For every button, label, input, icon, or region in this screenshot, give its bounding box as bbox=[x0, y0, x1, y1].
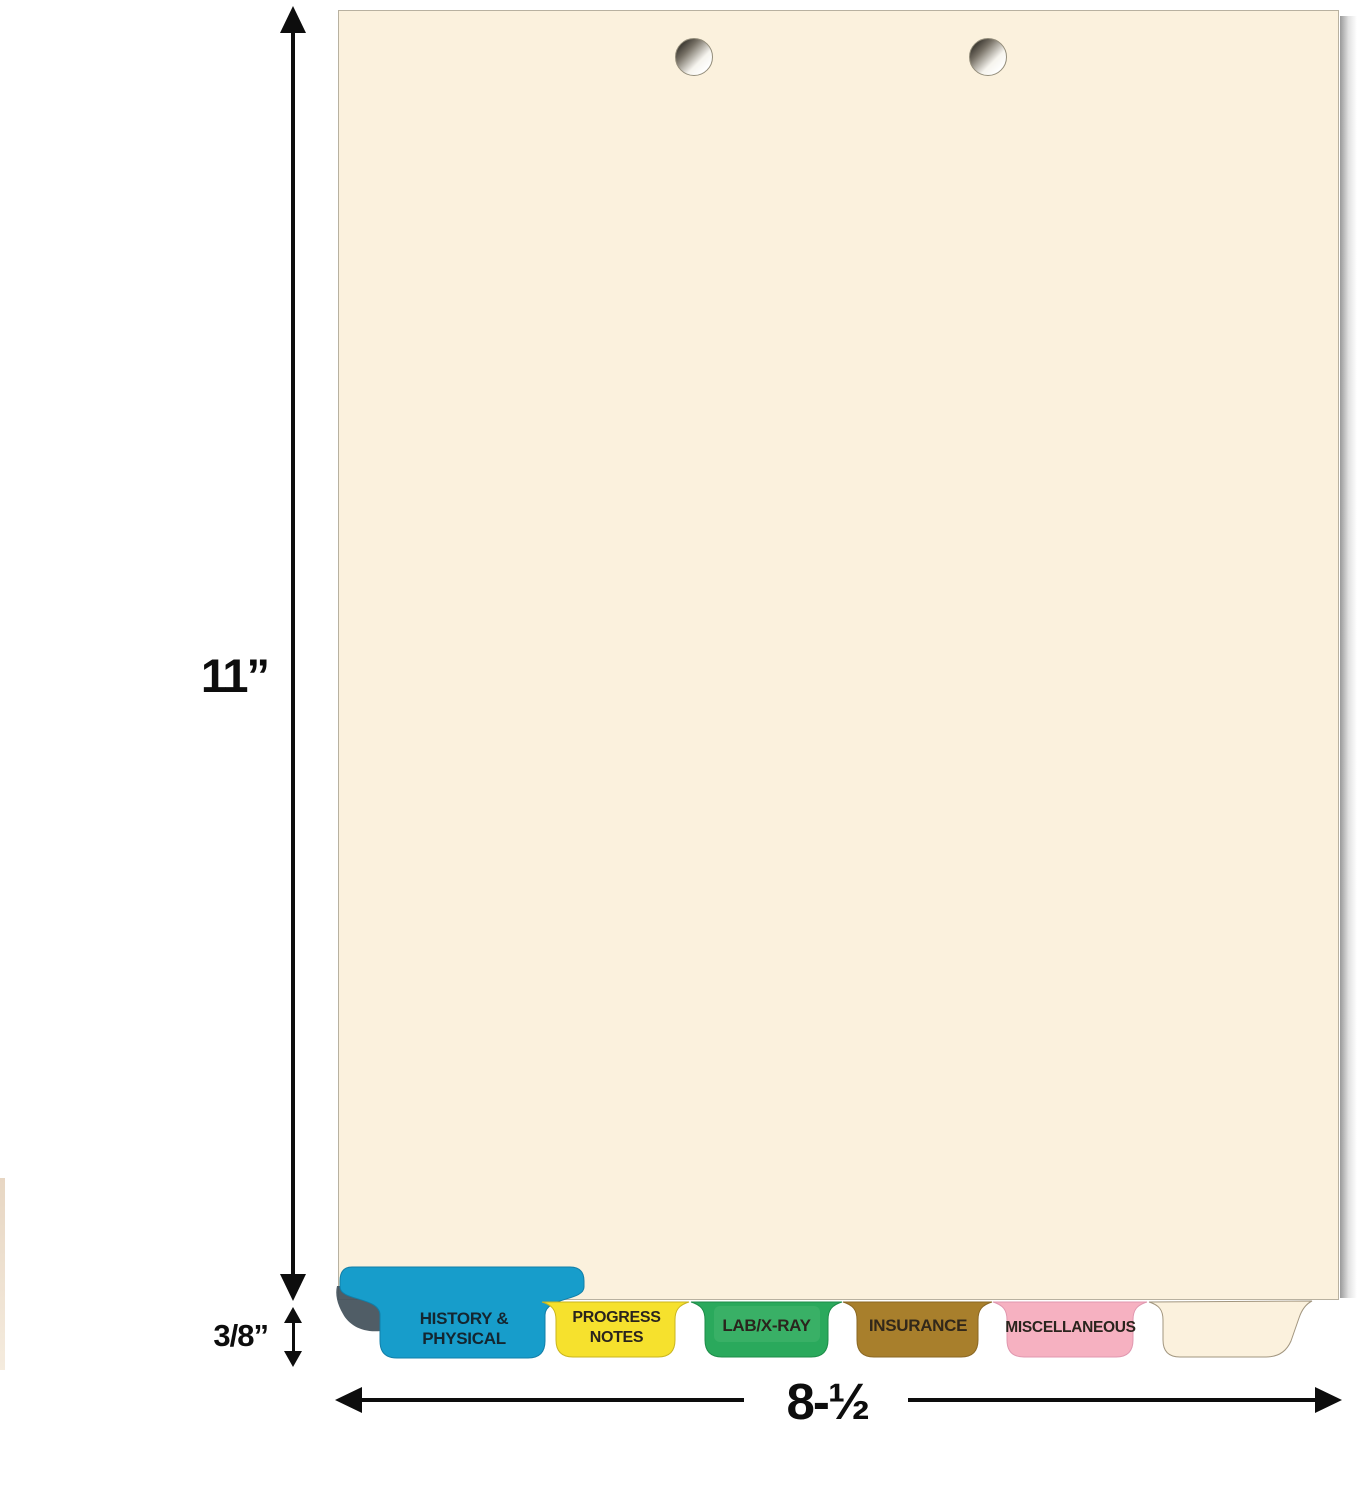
tab-height-dimension-label: 3/8” bbox=[140, 1318, 268, 1354]
height-arrowhead-up-icon bbox=[280, 6, 306, 33]
width-arrowhead-left-icon bbox=[335, 1387, 362, 1413]
tab-height-arrowhead-up-icon bbox=[284, 1307, 302, 1323]
tab-shape-blank bbox=[1149, 1301, 1312, 1357]
tab-insurance: INSURANCE bbox=[844, 1298, 992, 1354]
tab-history-line2: PHYSICAL bbox=[422, 1329, 506, 1348]
adjacent-image-sliver bbox=[0, 1178, 5, 1370]
tab-history-line1: HISTORY & bbox=[420, 1309, 509, 1328]
tab-history-physical-label: HISTORY & PHYSICAL bbox=[420, 1309, 509, 1349]
divider-sheet bbox=[338, 10, 1339, 1300]
tab-miscellaneous: MISCELLANEOUS bbox=[994, 1300, 1147, 1356]
tab-progress-notes: PROGRESS NOTES bbox=[545, 1300, 688, 1356]
tab-height-arrowhead-down-icon bbox=[284, 1351, 302, 1367]
sheet-drop-shadow bbox=[1340, 16, 1357, 1298]
tab-lab-xray: LAB/X-RAY bbox=[691, 1298, 842, 1354]
width-dimension-line-right bbox=[908, 1398, 1318, 1402]
height-dimension-label: 11” bbox=[140, 648, 268, 703]
height-arrowhead-down-icon bbox=[280, 1274, 306, 1301]
punch-hole-right bbox=[969, 38, 1007, 76]
tab-height-dimension-line bbox=[292, 1320, 295, 1354]
width-dimension-label: 8-½ bbox=[745, 1372, 910, 1431]
width-dimension-line-left bbox=[358, 1398, 744, 1402]
product-image: HISTORY & PHYSICAL PROGRESS NOTES LAB/X-… bbox=[0, 0, 1365, 1500]
punch-hole-left bbox=[675, 38, 713, 76]
tab-history-physical: HISTORY & PHYSICAL bbox=[380, 1302, 548, 1356]
width-arrowhead-right-icon bbox=[1315, 1387, 1342, 1413]
height-dimension-line bbox=[291, 30, 295, 1276]
